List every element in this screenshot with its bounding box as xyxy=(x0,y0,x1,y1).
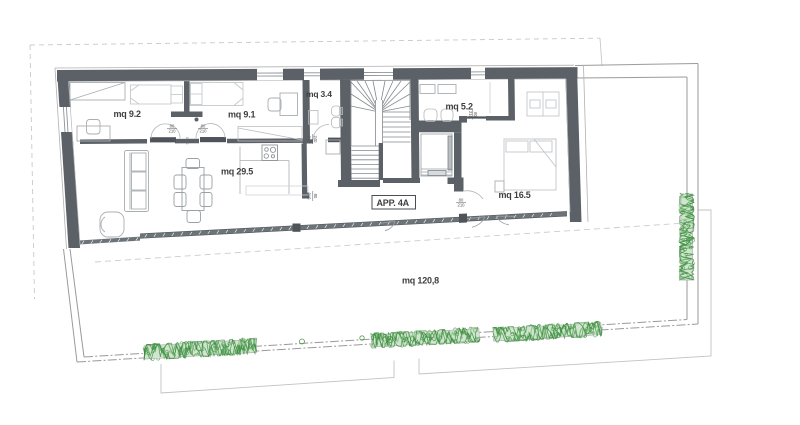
svg-text:210: 210 xyxy=(468,111,473,119)
svg-text:APP. 4A: APP. 4A xyxy=(377,198,410,208)
svg-text:210: 210 xyxy=(200,129,208,134)
svg-text:mq 120,8: mq 120,8 xyxy=(402,276,439,286)
svg-text:mq 5.2: mq 5.2 xyxy=(446,102,474,112)
svg-text:210: 210 xyxy=(458,203,466,208)
svg-text:80: 80 xyxy=(313,194,318,199)
svg-text:0,10: 0,10 xyxy=(185,137,189,144)
svg-text:mq 9.1: mq 9.1 xyxy=(228,110,256,120)
svg-text:mq 29.5: mq 29.5 xyxy=(221,167,253,177)
svg-text:240: 240 xyxy=(313,136,318,144)
svg-text:mq 16.5: mq 16.5 xyxy=(499,190,531,200)
svg-text:210: 210 xyxy=(307,136,312,144)
svg-text:mq 3.4: mq 3.4 xyxy=(306,89,332,99)
svg-text:mq 9.2: mq 9.2 xyxy=(114,109,142,119)
svg-text:210: 210 xyxy=(307,193,312,201)
svg-text:210: 210 xyxy=(169,129,177,134)
